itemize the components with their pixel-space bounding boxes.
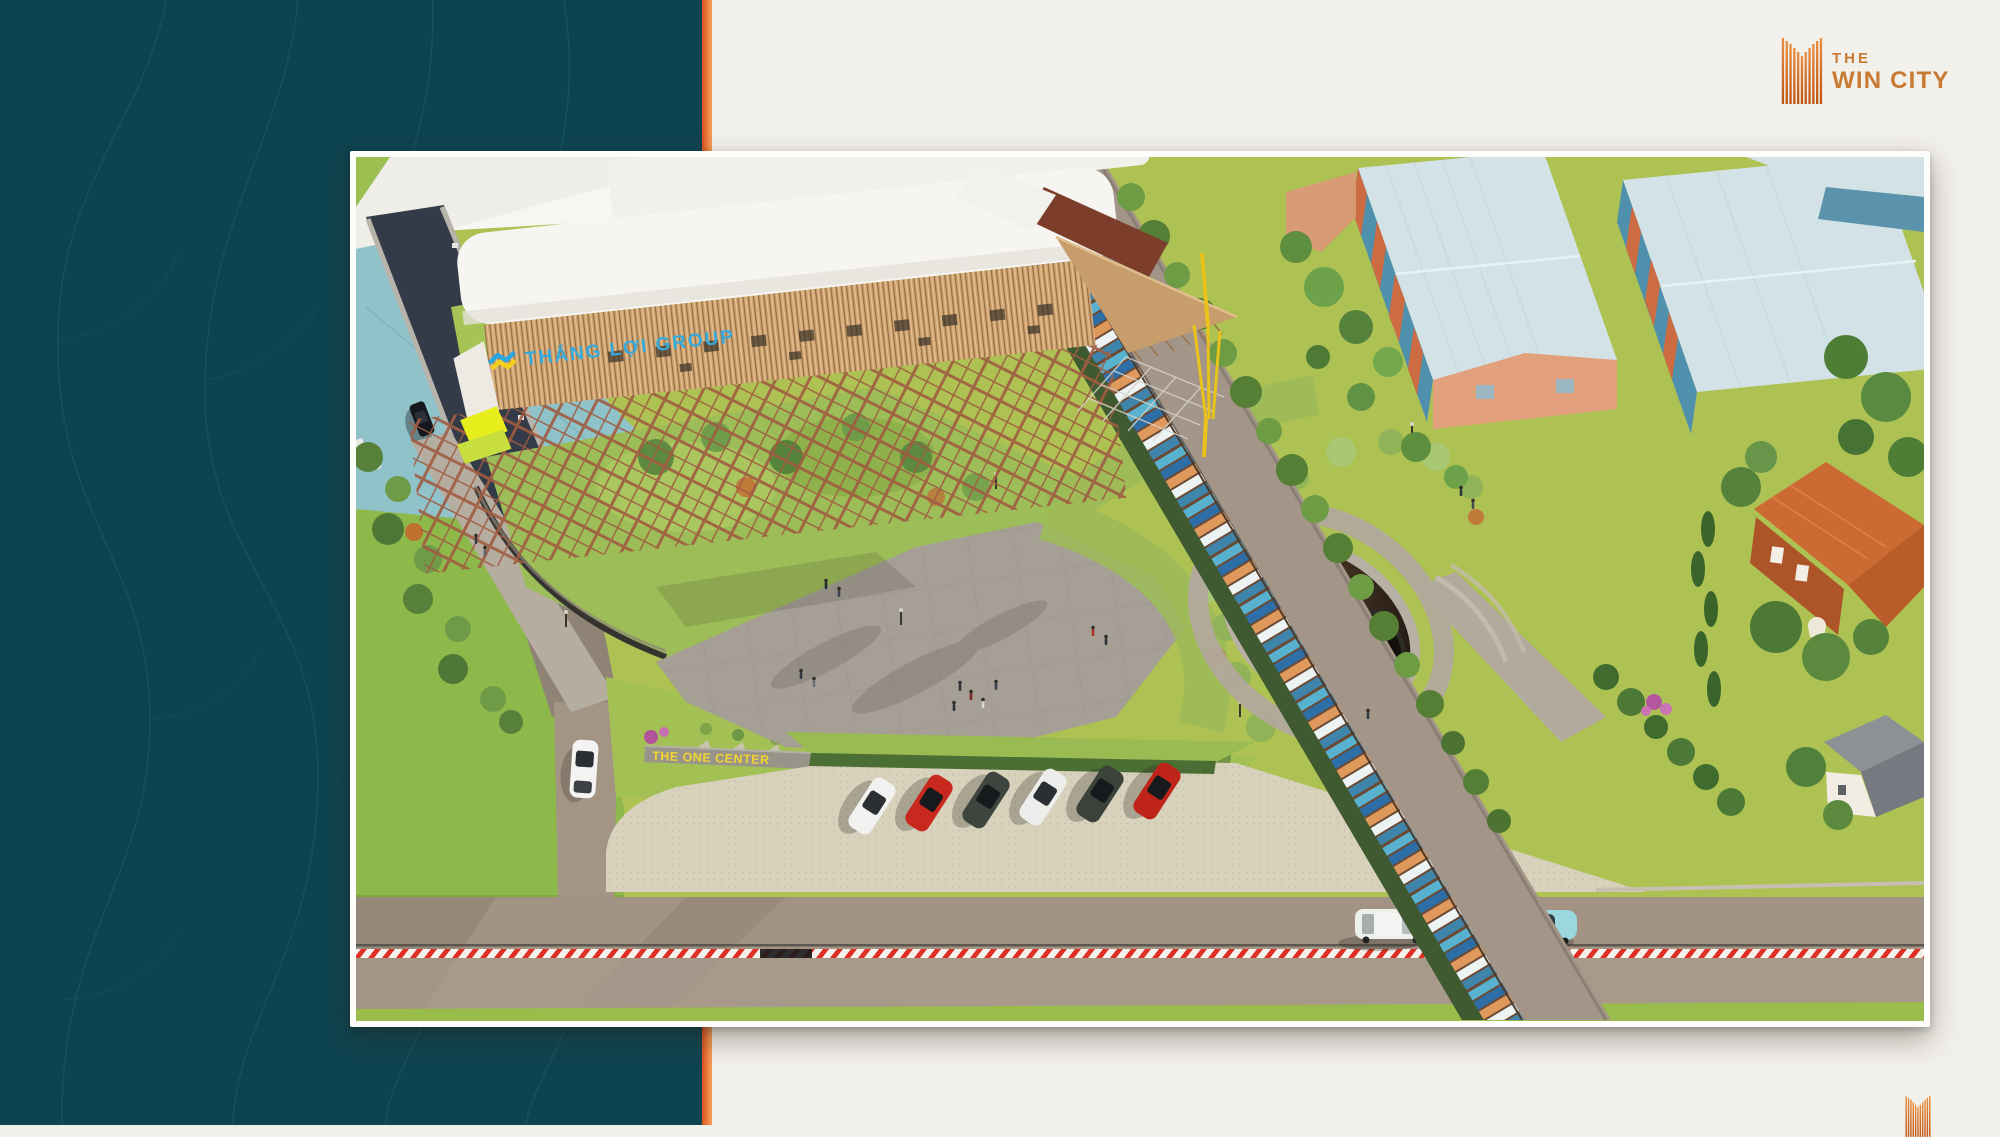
brand-logo-text: THE WIN CITY — [1832, 51, 1950, 94]
aerial-render-photo: THE ONE CENTER — [350, 151, 1930, 1027]
brand-logo: THE WIN CITY — [1781, 38, 1950, 104]
corner-logo-icon — [1905, 1096, 1931, 1137]
win-city-bars-icon — [1781, 38, 1823, 104]
render-scene: THE ONE CENTER — [356, 157, 1924, 1021]
brand-line-the: THE — [1832, 51, 1950, 68]
brand-line-win-city: WIN CITY — [1832, 68, 1950, 95]
safety-stripe-line — [356, 949, 1924, 958]
slide-root: { "brand": { "line1": "THE", "line2": "W… — [0, 0, 2000, 1125]
bottom-road — [356, 883, 1924, 1021]
